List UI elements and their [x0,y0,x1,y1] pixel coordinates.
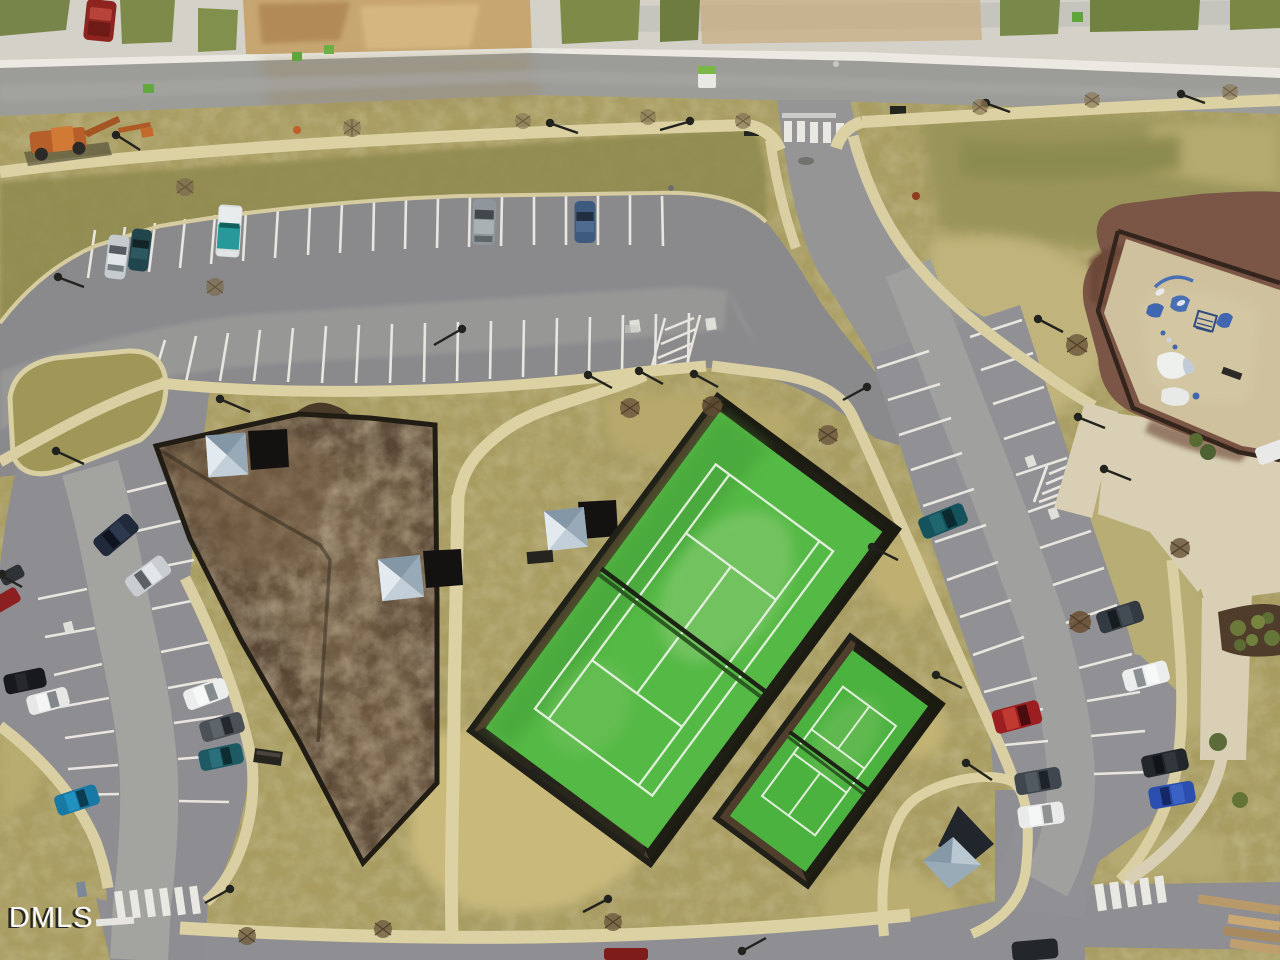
svg-text:DMLS: DMLS [9,902,94,934]
